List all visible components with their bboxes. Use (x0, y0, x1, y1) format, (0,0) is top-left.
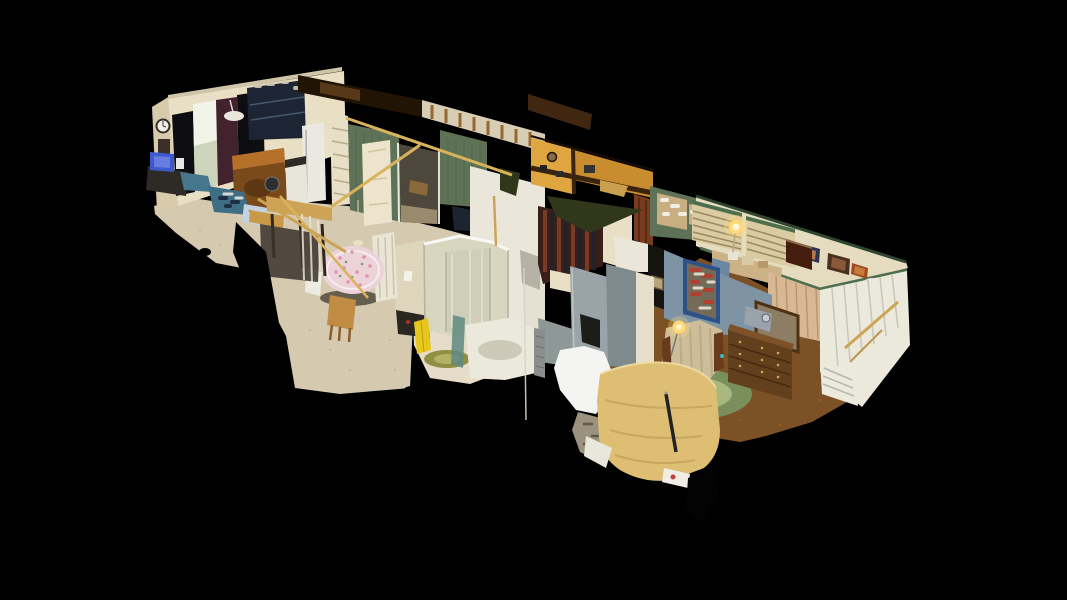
sink-wok (265, 177, 279, 191)
rod-tip (665, 392, 668, 395)
built-in-drawers (330, 112, 350, 206)
pendant-shade (353, 240, 363, 246)
gray-wall-tall (606, 264, 638, 368)
cyan-trinket (720, 354, 724, 358)
hole-small-2 (404, 386, 420, 394)
orange-wall-frame-2 (556, 171, 563, 177)
closet-cream-door-edge (636, 272, 654, 370)
hole-small-1 (199, 248, 211, 256)
floor-lamp-core (676, 324, 682, 330)
porthole-mirror (548, 153, 557, 162)
ceiling-light (224, 111, 244, 121)
dollhouse-3d-view[interactable] (0, 0, 1067, 600)
screen-glow (154, 156, 170, 168)
machine-wheel (762, 314, 770, 322)
gray-rack (534, 328, 545, 378)
wall-note (403, 270, 412, 281)
chair-red-accent (406, 320, 410, 324)
window-lamp-core (733, 224, 740, 231)
teal-glass-pane (451, 315, 465, 368)
orange-wall-frame-3 (584, 165, 595, 173)
tub-basin-shadow (478, 340, 522, 360)
armchair-arm-right (714, 332, 724, 372)
desk-paper (176, 158, 184, 169)
desk-box-1 (728, 252, 738, 260)
orange-trim-divider (573, 149, 574, 194)
desk-box-3 (758, 261, 768, 268)
desk-box-2 (742, 256, 754, 265)
box-red-mark (671, 475, 676, 480)
window-daylight-bright (193, 100, 217, 146)
orange-wall-frame-1 (540, 165, 547, 171)
wood-chair-below (327, 295, 356, 330)
viewer-stage (0, 0, 1067, 600)
